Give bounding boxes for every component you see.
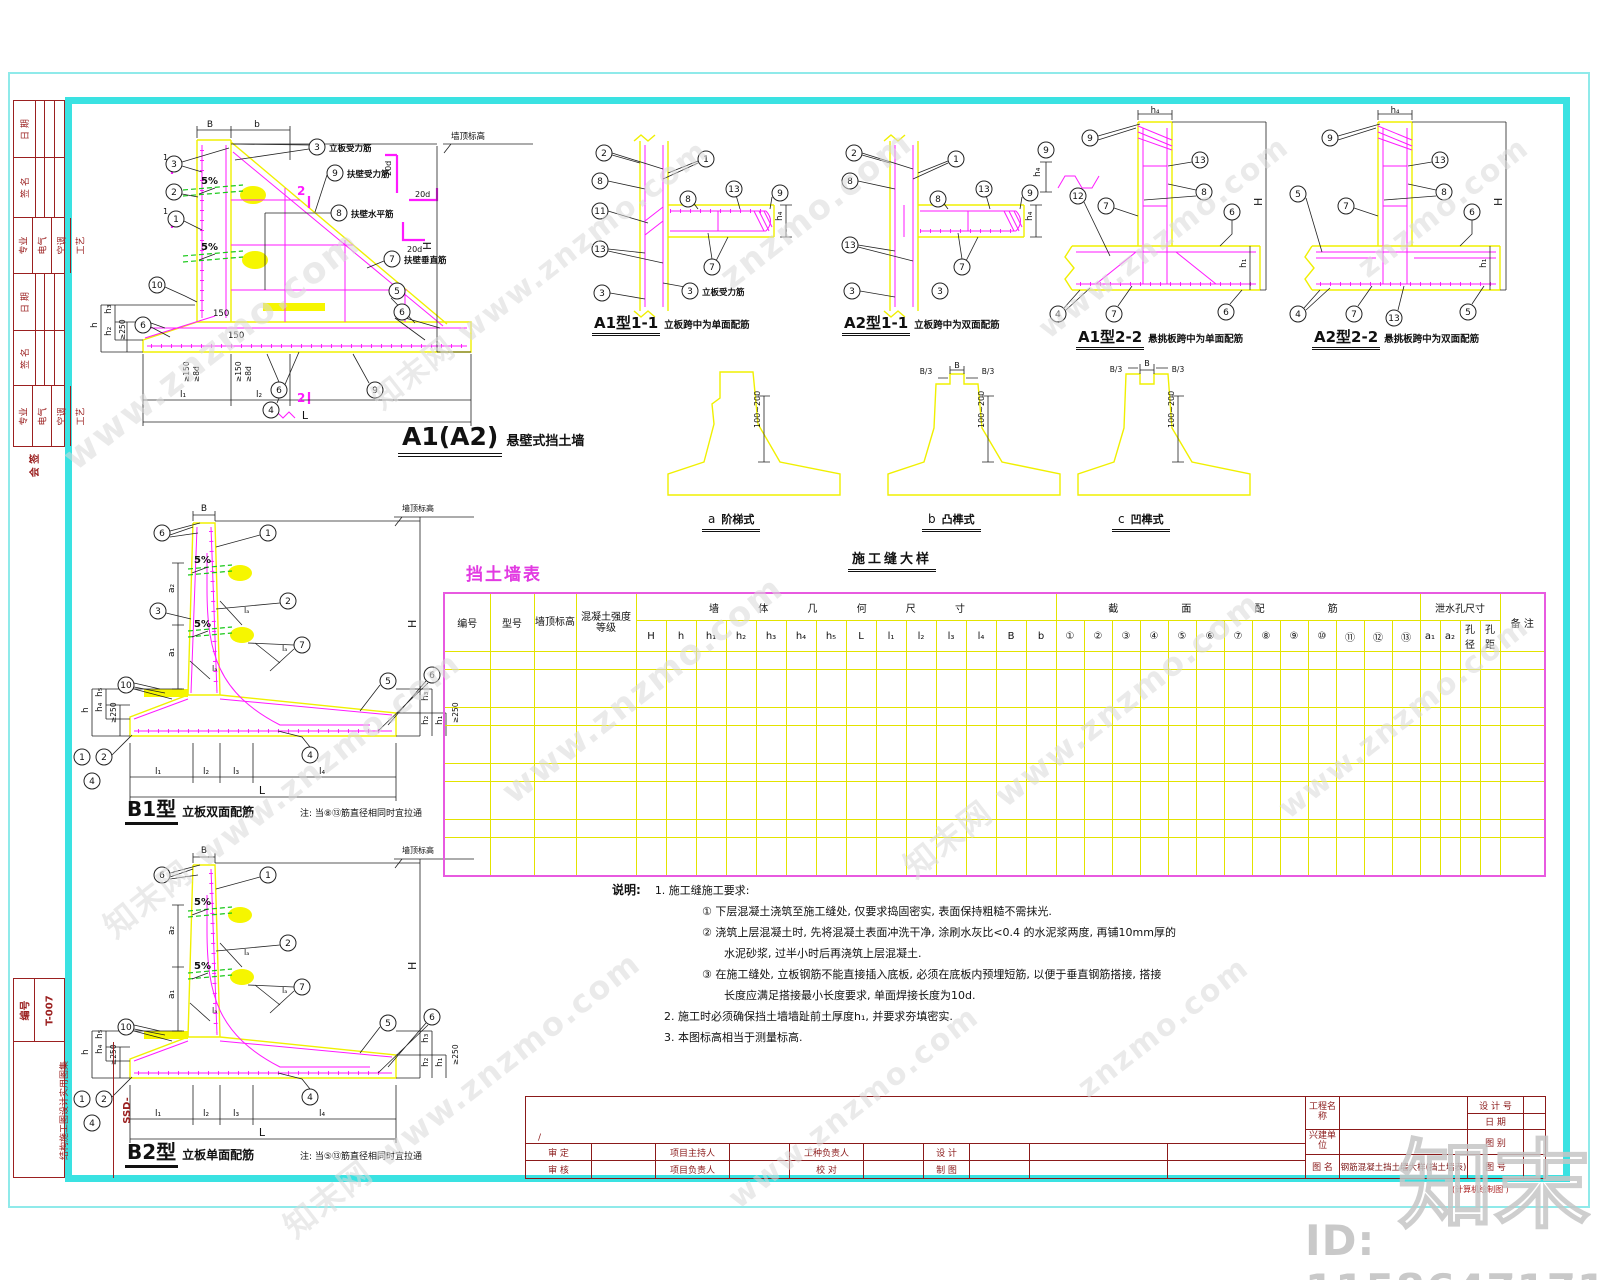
col-header: 孔径: [1460, 621, 1480, 652]
svg-text:7: 7: [1343, 202, 1349, 212]
dimensions: B 墙顶标高 H h₃ h₂ h₁ ≥250 h h₅ h₄ ≥250 a₂ a…: [81, 503, 474, 801]
svg-text:l₁: l₁: [180, 390, 187, 400]
svg-text:6: 6: [1223, 308, 1229, 318]
svg-text:7: 7: [389, 255, 395, 265]
col-header: l₃: [936, 621, 966, 652]
section-label-a1-1-1: A1型1-1立板跨中为单面配筋: [592, 312, 750, 333]
tb-value: [1524, 1155, 1546, 1179]
cad-note: (计算机绘制图 ): [1452, 1184, 1509, 1195]
code-value: T-007: [45, 995, 56, 1025]
detail-name: 悬壁式挡土墙: [506, 434, 584, 449]
table-row: [444, 652, 1545, 670]
col-header: ①: [1056, 621, 1084, 652]
col-header: ⑩: [1308, 621, 1336, 652]
svg-text:1: 1: [265, 871, 271, 881]
svg-text:5: 5: [1295, 190, 1301, 200]
tb-value: [1340, 1130, 1468, 1155]
svg-text:20d: 20d: [415, 190, 430, 199]
col-header: ④: [1140, 621, 1168, 652]
svg-text:≥8d: ≥8d: [244, 366, 253, 382]
svg-text:L: L: [302, 409, 309, 422]
note-line: 1. 施工缝施工要求:: [655, 884, 750, 897]
svg-text:5%: 5%: [194, 619, 211, 630]
svg-text:h₃: h₃: [421, 691, 431, 701]
tb-label: 图 名: [1306, 1155, 1340, 1179]
svg-text:3: 3: [171, 160, 177, 170]
svg-text:3: 3: [849, 287, 855, 297]
detail-code: A1(A2): [398, 422, 502, 457]
svg-text:8: 8: [336, 209, 342, 219]
svg-text:8: 8: [1201, 188, 1207, 198]
svg-text:5: 5: [394, 287, 400, 297]
svg-text:150: 150: [213, 309, 229, 319]
table-row: [444, 726, 1545, 764]
svg-text:6: 6: [276, 386, 282, 396]
svg-text:h₄: h₄: [95, 702, 105, 712]
svg-text:≥250: ≥250: [109, 702, 118, 723]
section-a2-1-1: h₄ 2 8 13 3 1 8 13 9 7 3: [838, 133, 1048, 321]
col-header: 备 注: [1500, 593, 1545, 652]
strip-label: 工艺: [74, 236, 87, 254]
svg-text:扶壁受力筋: 扶壁受力筋: [347, 169, 390, 180]
svg-text:l₂: l₂: [256, 390, 263, 400]
svg-text:lₐ: lₐ: [212, 664, 217, 673]
tb-value: [1030, 1161, 1168, 1179]
svg-text:3: 3: [687, 287, 693, 297]
strip-label: 电气: [36, 407, 49, 425]
notes-block: 说明:1. 施工缝施工要求: ① 下层混凝土浇筑至施工缝处, 仅要求捣固密实, …: [612, 880, 1152, 1048]
section-label-a2-1-1: A2型1-1立板跨中为双面配筋: [842, 312, 1000, 333]
svg-text:h₄: h₄: [775, 211, 785, 221]
svg-text:6: 6: [159, 871, 165, 881]
svg-text:20d: 20d: [407, 245, 422, 254]
title-block-right: 工程名称 设 计 号 日 期 兴建单位 图 别 图 名 钢筋混凝土挡土墙大样(挡…: [1305, 1096, 1546, 1179]
section-label-a1-2-2: A1型2-2悬挑板跨中为单面配筋: [1076, 326, 1243, 347]
cad-sheet: www.znzmo.com 知末网 www.znzmo.com znzmo.co…: [0, 0, 1600, 1280]
strip-label: 工艺: [74, 407, 87, 425]
tb-value: [730, 1144, 790, 1161]
svg-text:a₁: a₁: [167, 989, 177, 999]
svg-text:B: B: [201, 504, 207, 514]
col-header: l₂: [906, 621, 936, 652]
svg-text:h₄: h₄: [1391, 106, 1400, 116]
signature-strip: 日 期 签 名 专业 电气 空调 工艺 日 期 签 名 专业 电气 空调 工艺: [13, 100, 65, 447]
callouts: 9 13 8 7 12 6 4 7 6: [1050, 124, 1242, 322]
svg-text:5: 5: [1465, 308, 1471, 318]
col-header: 编号: [444, 593, 490, 652]
tb-label: 制 图: [924, 1161, 970, 1179]
col-header: ⑥: [1196, 621, 1224, 652]
svg-text:a₁: a₁: [167, 647, 177, 657]
svg-text:7: 7: [1103, 202, 1109, 212]
svg-text:H: H: [406, 962, 419, 970]
svg-text:h₃: h₃: [104, 304, 114, 314]
svg-text:≥150: ≥150: [234, 361, 243, 382]
series-label: 结构施工图设计实用图集: [57, 1060, 70, 1159]
heqian-label: 会 签: [26, 454, 41, 477]
svg-text:L: L: [259, 1126, 266, 1139]
col-header: ⑫: [1364, 621, 1392, 652]
strip-label: 日 期: [18, 292, 31, 313]
svg-text:6: 6: [159, 529, 165, 539]
svg-text:l₃: l₃: [233, 767, 240, 777]
svg-text:B: B: [207, 120, 213, 130]
svg-text:h₁: h₁: [1479, 258, 1489, 268]
svg-text:6: 6: [429, 671, 435, 681]
col-header: l₁: [876, 621, 906, 652]
joint-name: 凸榫式: [942, 513, 975, 526]
svg-text:13: 13: [978, 185, 989, 195]
joint-profile-groove: B B/3 B/3 100~200: [1068, 362, 1258, 514]
code-label: 编号: [17, 1000, 32, 1020]
section-desc: 立板跨中为单面配筋: [664, 320, 750, 331]
svg-text:l₂: l₂: [203, 1109, 210, 1119]
svg-text:7: 7: [299, 641, 305, 651]
main-retaining-wall-detail: B b 墙顶标高 H h h₃ h₂ ≥250 150 150 ≥150 ≥8d…: [85, 100, 585, 465]
joint-label-c: c凹榫式: [1112, 508, 1170, 532]
section-desc: 悬挑板跨中为双面配筋: [1384, 334, 1479, 345]
svg-text:5%: 5%: [194, 897, 211, 908]
svg-text:B/3: B/3: [920, 367, 933, 376]
section-label-a2-2-2: A2型2-2悬挑板跨中为双面配筋: [1312, 326, 1479, 347]
svg-text:8: 8: [685, 195, 691, 205]
svg-text:9: 9: [332, 169, 338, 179]
joint-profile-stepped: 100~200: [660, 362, 850, 514]
b1-note: 注: 当⑧⑬筋直径相同时宜拉通: [300, 806, 422, 819]
col-header: ⑤: [1168, 621, 1196, 652]
note-line: ① 下层混凝土浇筑至施工缝处, 仅要求捣固密实, 表面保持粗糙不需抹光.: [612, 901, 1152, 922]
col-header: ⑧: [1252, 621, 1280, 652]
table-header-row: 编号 型号 墙顶标高 混凝土强度等级 墙 体 几 何 尺 寸 截 面 配 筋 泄…: [444, 593, 1545, 621]
tb-value: [592, 1161, 656, 1179]
svg-text:1: 1: [79, 753, 85, 763]
col-header: ⑨: [1280, 621, 1308, 652]
b1-wall-detail: lₐ lₐ lₐ 5% 5% B 墙顶标高 H h₃ h₂ h₁ ≥250 h …: [70, 493, 490, 805]
tb-value: [1524, 1130, 1546, 1155]
tb-label: 日 期: [1468, 1114, 1524, 1130]
joint-name: 阶梯式: [721, 513, 754, 526]
tb-label: 兴建单位: [1306, 1130, 1340, 1155]
svg-text:h: h: [81, 707, 91, 713]
svg-text:5: 5: [385, 1019, 391, 1029]
svg-text:h₂: h₂: [421, 1057, 431, 1067]
note-line: 水泥砂浆, 过半小时后再浇筑上层混凝土.: [612, 943, 1152, 964]
svg-text:10: 10: [120, 681, 132, 691]
notes-label: 说明:: [612, 883, 641, 897]
svg-text:lₐ: lₐ: [244, 948, 249, 957]
svg-text:立板受力筋: 立板受力筋: [329, 143, 372, 154]
note-line: 2. 施工时必须确保挡土墙墙趾前土厚度h₁, 并要求夯填密实.: [612, 1006, 1152, 1027]
svg-text:B/3: B/3: [1172, 365, 1185, 374]
svg-text:h₂: h₂: [104, 326, 114, 336]
note-line: 3. 本图标高相当于测量标高.: [612, 1027, 1152, 1048]
svg-text:100~200: 100~200: [977, 391, 986, 428]
col-header: L: [846, 621, 876, 652]
code-strip: 编号 T-007 结构施工图设计实用图集 SSD-: [13, 978, 65, 1178]
strip-label: 专业: [17, 407, 30, 425]
svg-text:2: 2: [297, 184, 305, 198]
b2-note: 注: 当⑤⑬筋直径相同时宜拉通: [300, 1149, 422, 1162]
svg-text:8: 8: [1441, 188, 1447, 198]
svg-text:11: 11: [594, 207, 605, 217]
tb-value: [970, 1161, 1030, 1179]
svg-text:B/3: B/3: [1110, 365, 1123, 374]
svg-text:h₄: h₄: [1033, 167, 1043, 177]
joint-letter: c: [1118, 512, 1125, 526]
svg-text:l₄: l₄: [319, 1109, 326, 1119]
svg-text:5%: 5%: [201, 176, 218, 187]
svg-text:13: 13: [728, 185, 739, 195]
detail-code: B2型: [125, 1140, 178, 1168]
tb-label: 图 号: [1468, 1155, 1524, 1179]
callouts: 9 13 8 5 7 6 4 7 13 5: [1290, 124, 1484, 326]
table-row: [444, 838, 1545, 876]
svg-text:立板受力筋: 立板受力筋: [702, 287, 745, 298]
svg-text:H: H: [421, 242, 434, 250]
svg-text:9: 9: [1087, 134, 1093, 144]
svg-text:4: 4: [1295, 310, 1301, 320]
tb-label: 设 计 号: [1468, 1097, 1524, 1114]
tb-value: [592, 1144, 656, 1161]
svg-text:b: b: [254, 120, 260, 130]
col-header: h₃: [756, 621, 786, 652]
svg-text:2: 2: [297, 391, 305, 405]
section-a1-2-2: 9 h₄ h₄ H h₁ 9 13 8 7: [1032, 106, 1272, 346]
svg-text:3: 3: [314, 143, 320, 153]
strip-label: 签 名: [18, 177, 31, 198]
svg-text:扶壁水平筋: 扶壁水平筋: [351, 209, 394, 220]
retaining-wall-table: 编号 型号 墙顶标高 混凝土强度等级 墙 体 几 何 尺 寸 截 面 配 筋 泄…: [443, 592, 1546, 877]
section-code: A2型1-1: [842, 314, 910, 336]
svg-text:h₄: h₄: [1151, 106, 1160, 116]
group-header-weephole: 泄水孔尺寸: [1420, 593, 1500, 621]
tb-value: [730, 1161, 790, 1179]
tb-label: 设 计: [924, 1144, 970, 1161]
svg-text:7: 7: [299, 983, 305, 993]
svg-text:6: 6: [429, 1013, 435, 1023]
svg-text:≥250: ≥250: [118, 319, 127, 340]
joint-name: 凹榫式: [1131, 513, 1164, 526]
callouts: 6 1 3 2 7 5 6 10 4 1 2 4: [74, 523, 440, 789]
svg-text:5: 5: [385, 677, 391, 687]
svg-text:5%: 5%: [194, 961, 211, 972]
dimensions: B b 墙顶标高 H h h₃ h₂ ≥250 150 150 ≥150 ≥8d…: [90, 120, 533, 426]
svg-text:h₁: h₁: [435, 1057, 445, 1067]
callouts: 2 8 11 13 3 1 8 13 9 7 3 立板受力筋: [592, 145, 788, 301]
svg-text:4: 4: [89, 777, 95, 787]
tb-label: 校 对: [790, 1161, 864, 1179]
retaining-wall-table-body: [444, 652, 1545, 876]
col-header: h₁: [696, 621, 726, 652]
concrete-outline: [130, 523, 396, 736]
svg-text:8: 8: [597, 177, 603, 187]
svg-text:7: 7: [959, 263, 965, 273]
callouts: 2 8 13 3 1 8 13 9 7 3: [842, 145, 1038, 299]
svg-text:6: 6: [399, 308, 405, 318]
col-header: 孔距: [1480, 621, 1500, 652]
tb-value: [1168, 1144, 1306, 1161]
col-header: 墙顶标高: [534, 593, 576, 652]
tb-label: 审 定: [526, 1144, 592, 1161]
strip-label: 空调: [55, 407, 68, 425]
svg-text:B: B: [954, 361, 960, 370]
svg-text:l₁: l₁: [155, 767, 162, 777]
dimensions: h₄: [775, 205, 792, 237]
main-detail-label: A1(A2)悬壁式挡土墙: [398, 422, 584, 451]
joint-label-b: b凸榫式: [922, 508, 981, 532]
svg-text:7: 7: [1351, 310, 1357, 320]
svg-text:lₐ: lₐ: [244, 606, 249, 615]
col-header: l₄: [966, 621, 996, 652]
svg-text:lₐ: lₐ: [282, 986, 287, 995]
drawing-name-value: 钢筋混凝土挡土墙大样(挡土墙表): [1340, 1155, 1468, 1179]
tb-value: [1340, 1097, 1468, 1130]
rebar-lines: [895, 145, 1022, 307]
section-a1-1-1: h₄ 2 8 11 13 3 1 8 13 9 7 3 立板受力筋: [588, 133, 798, 321]
col-header: H: [636, 621, 666, 652]
svg-text:2: 2: [285, 597, 291, 607]
tb-value: [1524, 1114, 1546, 1130]
svg-text:100~200: 100~200: [1167, 391, 1176, 428]
svg-text:1: 1: [703, 155, 709, 165]
group-header-geometry: 墙 体 几 何 尺 寸: [636, 593, 1056, 621]
col-header: h₅: [816, 621, 846, 652]
svg-text:7: 7: [709, 263, 715, 273]
svg-text:l₃: l₃: [233, 1109, 240, 1119]
note-line: 长度应满足搭接最小长度要求, 单面焊接长度为10d.: [612, 985, 1152, 1006]
svg-text:10: 10: [120, 1023, 132, 1033]
strip-label: 专业: [17, 236, 30, 254]
svg-text:9: 9: [1043, 146, 1049, 156]
svg-text:a₂: a₂: [167, 583, 177, 593]
svg-text:5%: 5%: [194, 555, 211, 566]
strip-label: 日 期: [18, 119, 31, 140]
tb-value: [1168, 1161, 1306, 1179]
svg-text:9: 9: [777, 189, 783, 199]
series-value: SSD-: [122, 1097, 133, 1124]
b2-label: B2型立板单面配筋: [125, 1136, 254, 1165]
svg-text:h₅: h₅: [95, 687, 105, 697]
group-header-rebar: 截 面 配 筋: [1056, 593, 1420, 621]
svg-text:6: 6: [140, 321, 146, 331]
svg-text:13: 13: [844, 241, 855, 251]
svg-text:H: H: [1252, 198, 1265, 206]
svg-text:3: 3: [937, 287, 943, 297]
svg-text:8: 8: [847, 177, 853, 187]
joint-label-a: a阶梯式: [702, 508, 760, 532]
joint-mini-symbol: 9 h₄: [1033, 142, 1099, 192]
svg-text:8: 8: [935, 195, 941, 205]
title-block-top-cell: /: [526, 1097, 1306, 1144]
svg-text:4: 4: [1055, 310, 1061, 320]
tb-label: 工种负责人: [790, 1144, 864, 1161]
joint-profile-tenon: B B/3 B/3 100~200: [878, 362, 1068, 514]
svg-text:l₄: l₄: [319, 767, 326, 777]
joint-letter: b: [928, 512, 936, 526]
svg-text:2: 2: [851, 149, 857, 159]
svg-text:150: 150: [228, 331, 244, 341]
detail-name: 立板双面配筋: [182, 805, 254, 819]
svg-text:1: 1: [953, 155, 959, 165]
rebar-lines: [645, 145, 772, 307]
table-row: [444, 670, 1545, 708]
strip-label: 空调: [55, 236, 68, 254]
col-header: 型号: [490, 593, 534, 652]
section-code: A1型2-2: [1076, 328, 1144, 350]
joint-letter: a: [708, 512, 715, 526]
col-header: B: [996, 621, 1026, 652]
svg-text:12: 12: [1072, 192, 1083, 202]
svg-text:4: 4: [307, 1093, 313, 1103]
svg-text:13: 13: [594, 245, 605, 255]
svg-text:l₁: l₁: [155, 1109, 162, 1119]
svg-text:L: L: [259, 784, 266, 797]
svg-text:1: 1: [265, 529, 271, 539]
tb-label: 图 别: [1468, 1130, 1524, 1155]
col-header: ⑬: [1392, 621, 1420, 652]
svg-text:墙顶标高: 墙顶标高: [402, 503, 434, 513]
col-header: b: [1026, 621, 1056, 652]
svg-text:墙顶标高: 墙顶标高: [402, 845, 434, 855]
svg-text:6: 6: [1229, 208, 1235, 218]
section-a2-2-2: h₄ H h₁ 9 13 8 5 7 6 4 7 13 5: [1272, 106, 1512, 346]
col-header: h₄: [786, 621, 816, 652]
table-row: [444, 708, 1545, 726]
detail-code: B1型: [125, 797, 178, 825]
tb-label: 项目主持人: [656, 1144, 730, 1161]
tb-value: [864, 1161, 924, 1179]
col-header: ③: [1112, 621, 1140, 652]
tb-value: [864, 1144, 924, 1161]
svg-text:lₐ: lₐ: [212, 1006, 217, 1015]
strip-label: 签 名: [18, 348, 31, 369]
svg-text:1: 1: [173, 215, 179, 225]
title-block-left: / 审 定 项目主持人 工种负责人 设 计 审 核 项目负责人 校 对 制 图: [525, 1096, 1306, 1179]
col-header: h₂: [726, 621, 756, 652]
concrete-outline: [130, 865, 396, 1078]
svg-text:5%: 5%: [201, 242, 218, 253]
joint-detail-title: 施工缝大样: [848, 548, 936, 572]
strip-label: 电气: [36, 236, 49, 254]
col-header: ⑪: [1336, 621, 1364, 652]
col-header: ⑦: [1224, 621, 1252, 652]
drainage-slope-marks: 5% 5%: [188, 897, 232, 979]
svg-text:≥250: ≥250: [451, 1044, 460, 1065]
svg-text:1: 1: [163, 207, 168, 216]
svg-text:H: H: [1492, 198, 1505, 206]
table-title: 挡土墙表: [466, 560, 542, 585]
col-header: a₁: [1420, 621, 1440, 652]
svg-text:h₂: h₂: [421, 715, 431, 725]
svg-text:2: 2: [101, 753, 107, 763]
svg-text:l₂: l₂: [203, 767, 210, 777]
svg-text:9: 9: [1327, 134, 1333, 144]
svg-text:4: 4: [268, 406, 274, 416]
table-row: [444, 782, 1545, 820]
tb-label: 项目负责人: [656, 1161, 730, 1179]
table-row: [444, 764, 1545, 782]
tb-value: [1030, 1144, 1168, 1161]
svg-text:2: 2: [601, 149, 607, 159]
tb-value: [1524, 1097, 1546, 1114]
svg-text:lₐ: lₐ: [282, 644, 287, 653]
svg-text:100~200: 100~200: [753, 391, 762, 428]
svg-text:≥8d: ≥8d: [192, 366, 201, 382]
section-desc: 悬挑板跨中为单面配筋: [1148, 334, 1243, 345]
note-line: ③ 在施工缝处, 立板钢筋不能直接插入底板, 必须在底板内预埋短筋, 以便于垂直…: [612, 964, 1152, 985]
svg-text:4: 4: [307, 751, 313, 761]
svg-text:h₃: h₃: [421, 1033, 431, 1043]
